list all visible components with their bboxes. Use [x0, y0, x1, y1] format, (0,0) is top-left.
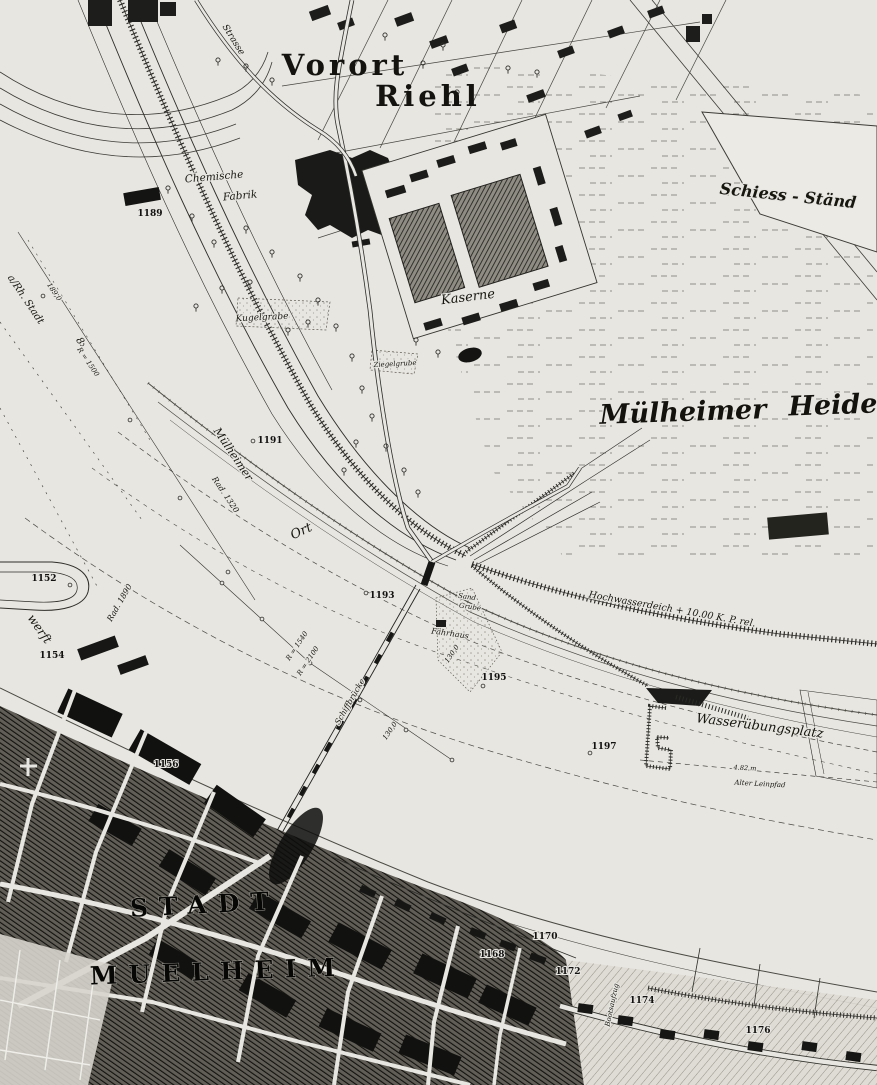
- parcel-1193: 1193: [369, 591, 394, 601]
- map-scan-page: Vorort Riehl Mülheimer Heide Schiess - S…: [0, 0, 877, 1085]
- parcel-1156: 1156: [153, 760, 178, 770]
- parcel-1189: 1189: [137, 209, 162, 219]
- label-vorort: Vorort: [281, 48, 408, 82]
- parcel-1154: 1154: [39, 651, 64, 661]
- parcel-1191: 1191: [257, 436, 282, 446]
- label-muelheimer-heide-1: Mülheimer: [598, 394, 769, 431]
- parcel-1197: 1197: [591, 742, 616, 752]
- parcel-1172: 1172: [555, 967, 580, 977]
- historic-map-canvas: Vorort Riehl Mülheimer Heide Schiess - S…: [0, 0, 877, 1085]
- label-riehl: Riehl: [375, 79, 481, 113]
- parcel-1152: 1152: [31, 574, 56, 584]
- parcel-1176: 1176: [745, 1026, 770, 1036]
- parcel-1174: 1174: [629, 996, 654, 1006]
- parcel-1168: 1168: [479, 950, 504, 960]
- label-height-482: 4.82 m: [732, 763, 756, 772]
- label-muelheimer-heide-2: Heide: [787, 388, 877, 422]
- parcel-1170: 1170: [532, 932, 557, 942]
- parcel-1195: 1195: [481, 673, 506, 683]
